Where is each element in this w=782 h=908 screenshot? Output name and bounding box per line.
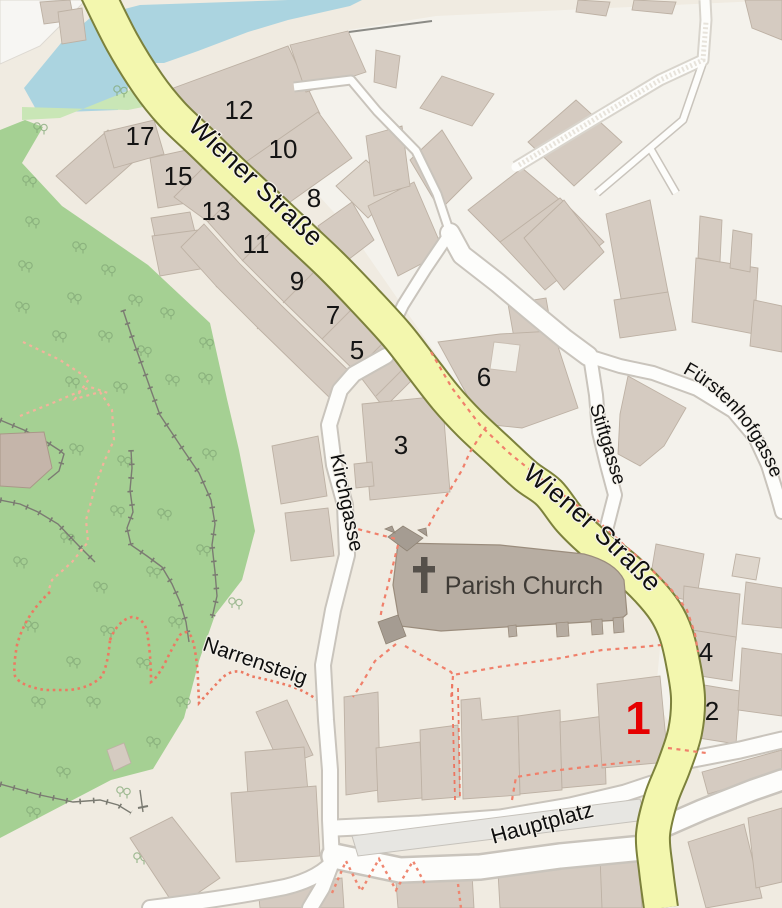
- svg-text:8: 8: [307, 183, 321, 213]
- svg-text:11: 11: [243, 229, 270, 259]
- svg-text:Parish Church: Parish Church: [445, 572, 603, 600]
- svg-text:13: 13: [202, 196, 231, 226]
- svg-text:6: 6: [477, 362, 491, 392]
- svg-text:12: 12: [225, 95, 254, 125]
- svg-text:2: 2: [705, 696, 719, 726]
- svg-text:10: 10: [269, 134, 298, 164]
- svg-text:3: 3: [394, 430, 408, 460]
- svg-text:7: 7: [326, 300, 340, 330]
- svg-text:9: 9: [290, 266, 304, 296]
- svg-text:15: 15: [164, 161, 193, 191]
- svg-text:17: 17: [126, 121, 155, 151]
- svg-text:4: 4: [699, 637, 713, 667]
- svg-text:1: 1: [625, 692, 651, 744]
- svg-text:5: 5: [350, 335, 364, 365]
